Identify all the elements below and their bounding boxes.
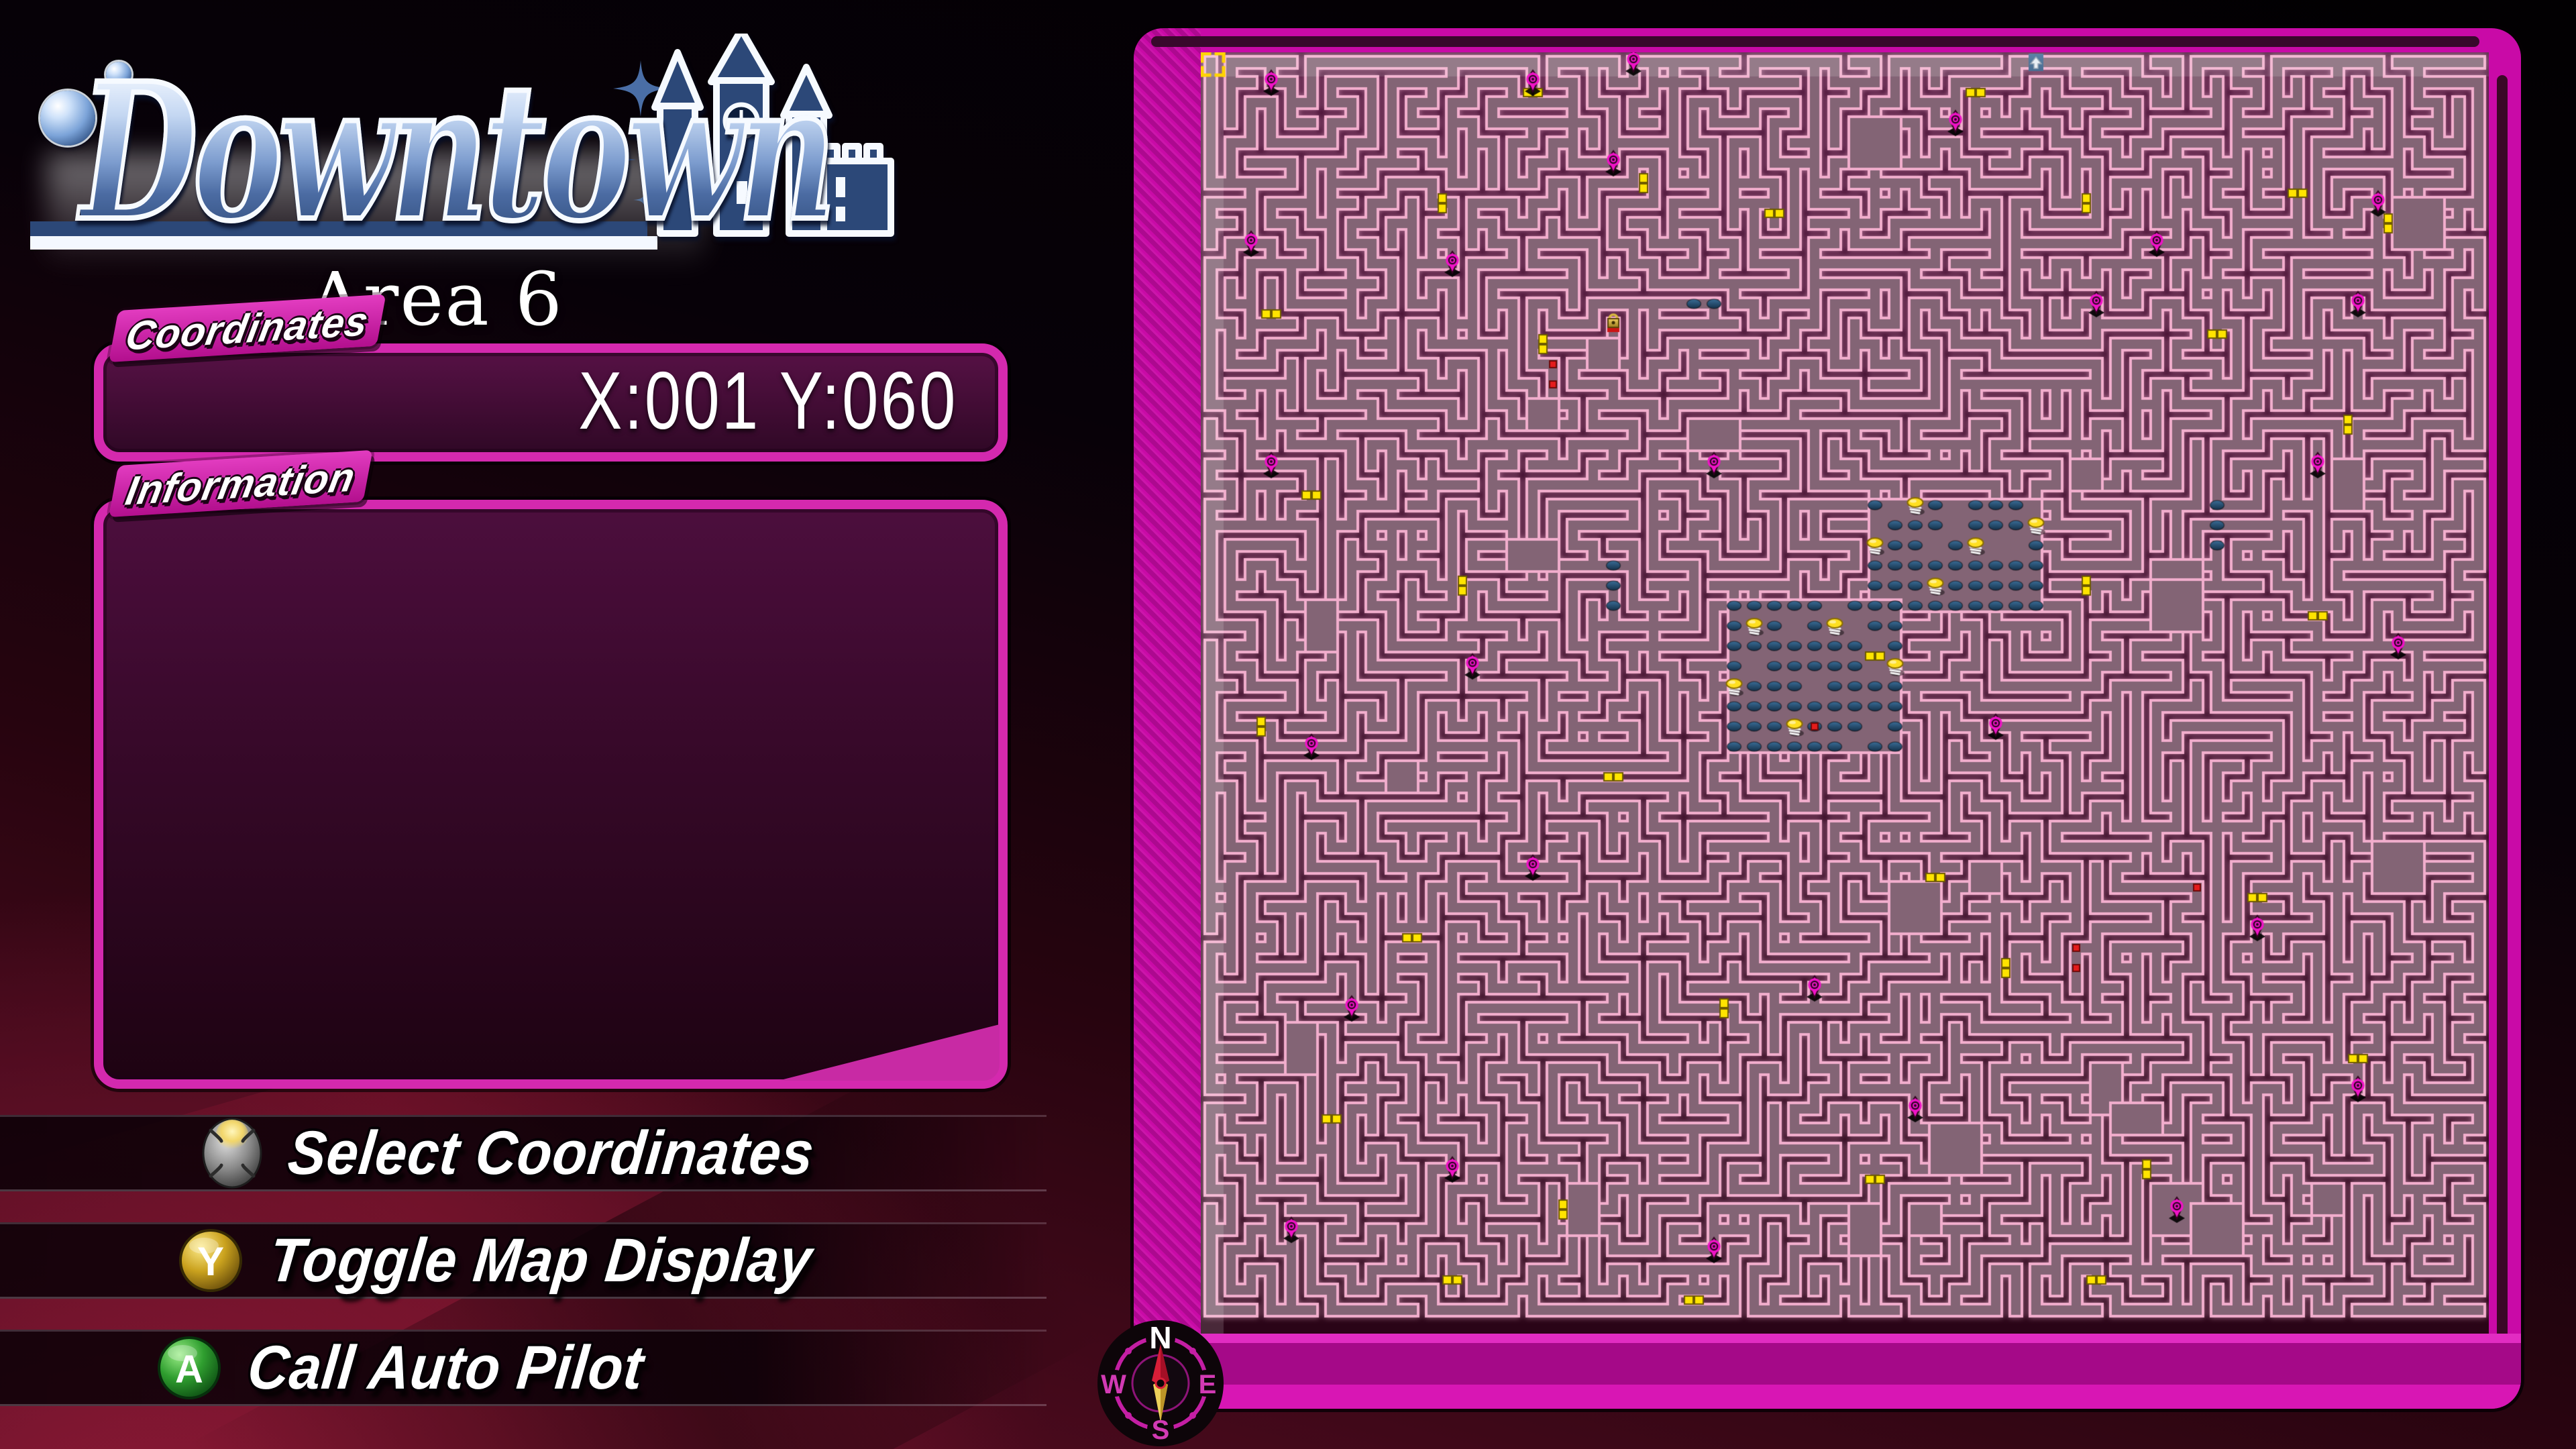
map-frame-left-bar (1134, 28, 1201, 1409)
control-toggle-map-display[interactable]: Y Toggle Map Display (0, 1222, 1046, 1299)
area-logo: Downtown Area 6 (27, 20, 979, 309)
a-button-letter: A (175, 1348, 203, 1391)
compass-north-label: N (1149, 1320, 1171, 1355)
map-frame-top-groove (1151, 36, 2479, 47)
control-select-coordinates[interactable]: Select Coordinates (0, 1115, 1046, 1191)
compass-east-label: E (1199, 1370, 1217, 1399)
information-label: Information (122, 453, 359, 515)
map-frame-bottom-bar (1134, 1334, 2521, 1409)
information-panel: Information (94, 500, 1008, 1089)
map-viewport (1201, 52, 2489, 1334)
control-label: Select Coordinates (284, 1118, 817, 1189)
control-label: Call Auto Pilot (244, 1333, 647, 1403)
compass-icon: N E S W (1092, 1315, 1229, 1449)
y-button-letter: Y (197, 1239, 224, 1284)
coordinates-value: X:001 Y:060 (579, 354, 958, 447)
control-label: Toggle Map Display (266, 1226, 815, 1296)
map-scrollbar-track (2497, 75, 2508, 1377)
logo-title: Downtown (80, 59, 832, 247)
map-frame (1134, 28, 2521, 1409)
panel-corner-wedge (778, 1024, 1000, 1081)
y-button-icon: Y (177, 1227, 244, 1294)
compass-south-label: S (1152, 1415, 1170, 1445)
maze-map-canvas[interactable] (1201, 52, 2489, 1334)
compass-west-label: W (1101, 1370, 1126, 1399)
dpad-icon (201, 1117, 263, 1189)
a-button-icon: A (156, 1334, 223, 1401)
coordinates-panel: Coordinates X:001 Y:060 (94, 343, 1008, 462)
control-call-auto-pilot[interactable]: A Call Auto Pilot (0, 1330, 1046, 1406)
map-screen: Downtown Area 6 Coordinates X:001 Y:060 … (0, 0, 2576, 1449)
